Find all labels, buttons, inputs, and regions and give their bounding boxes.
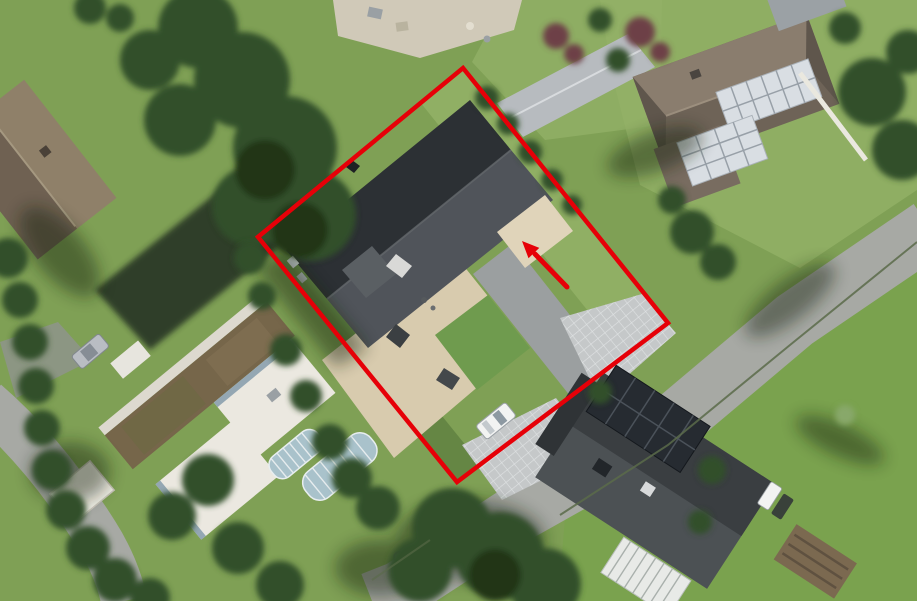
tree [670,210,714,254]
hedge-bush [32,450,72,490]
bush [588,380,612,404]
tree [106,4,134,32]
bush [588,8,612,32]
bush [312,424,348,460]
red-maple [564,44,584,64]
bush [698,456,726,484]
hedge-bush [12,324,48,360]
tree [144,84,216,156]
bush [688,510,712,534]
tree [700,244,736,280]
terrace-furniture [421,297,427,303]
bush [182,454,234,506]
red-maple [650,42,670,62]
satellite-view [0,0,917,601]
shrub-light [835,405,855,425]
bush [212,522,264,574]
yard-object [484,36,491,43]
hedge-bush [24,410,60,446]
hedge-bush [18,368,54,404]
red-maple [543,23,569,49]
bush [148,492,196,540]
tree [829,12,861,44]
yard-object [396,21,409,32]
hedge-bush [46,490,86,530]
yard-object [466,22,474,30]
bush [270,334,302,366]
bush [606,48,630,72]
tree [120,30,180,90]
bush [290,380,322,412]
tree [235,140,295,200]
tree [272,202,328,258]
tree [469,549,521,601]
bush [356,486,400,530]
hedge-bush [2,282,38,318]
red-maple [625,17,655,47]
bush [234,242,266,274]
tree [658,186,686,214]
bush [248,282,276,310]
terrace-furniture [431,306,436,311]
aerial-screenshot [0,0,917,601]
